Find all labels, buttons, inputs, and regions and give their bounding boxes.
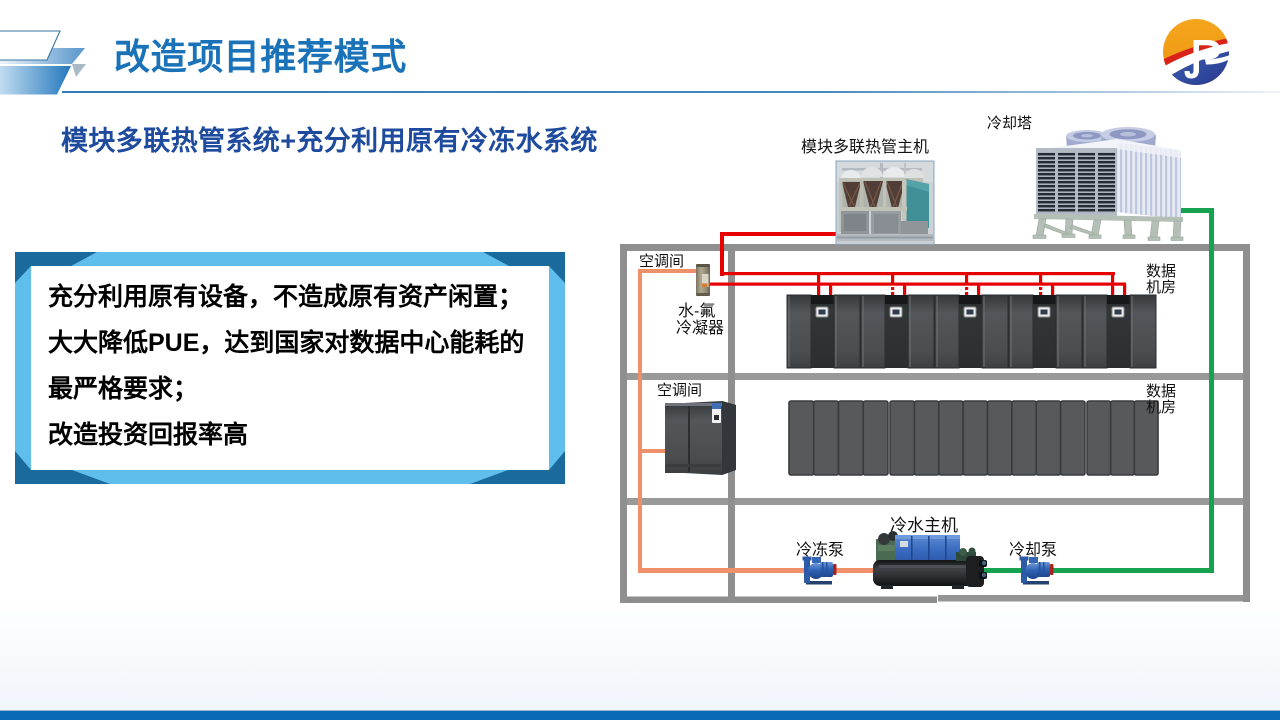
svg-text:机房: 机房 [1146, 399, 1176, 416]
svg-text:模块多联热管主机: 模块多联热管主机 [801, 138, 929, 156]
svg-text:冷却泵: 冷却泵 [1009, 541, 1057, 559]
svg-text:空调间: 空调间 [639, 253, 684, 270]
svg-text:机房: 机房 [1146, 279, 1176, 296]
svg-text:数据: 数据 [1146, 383, 1176, 400]
svg-text:冷冻泵: 冷冻泵 [796, 541, 844, 559]
svg-text:数据: 数据 [1146, 263, 1176, 280]
svg-text:冷却塔: 冷却塔 [987, 115, 1032, 132]
svg-text:冷凝器: 冷凝器 [676, 319, 724, 337]
svg-text:空调间: 空调间 [657, 382, 702, 399]
svg-text:冷水主机: 冷水主机 [890, 516, 958, 535]
svg-text:水-氟: 水-氟 [678, 302, 715, 320]
